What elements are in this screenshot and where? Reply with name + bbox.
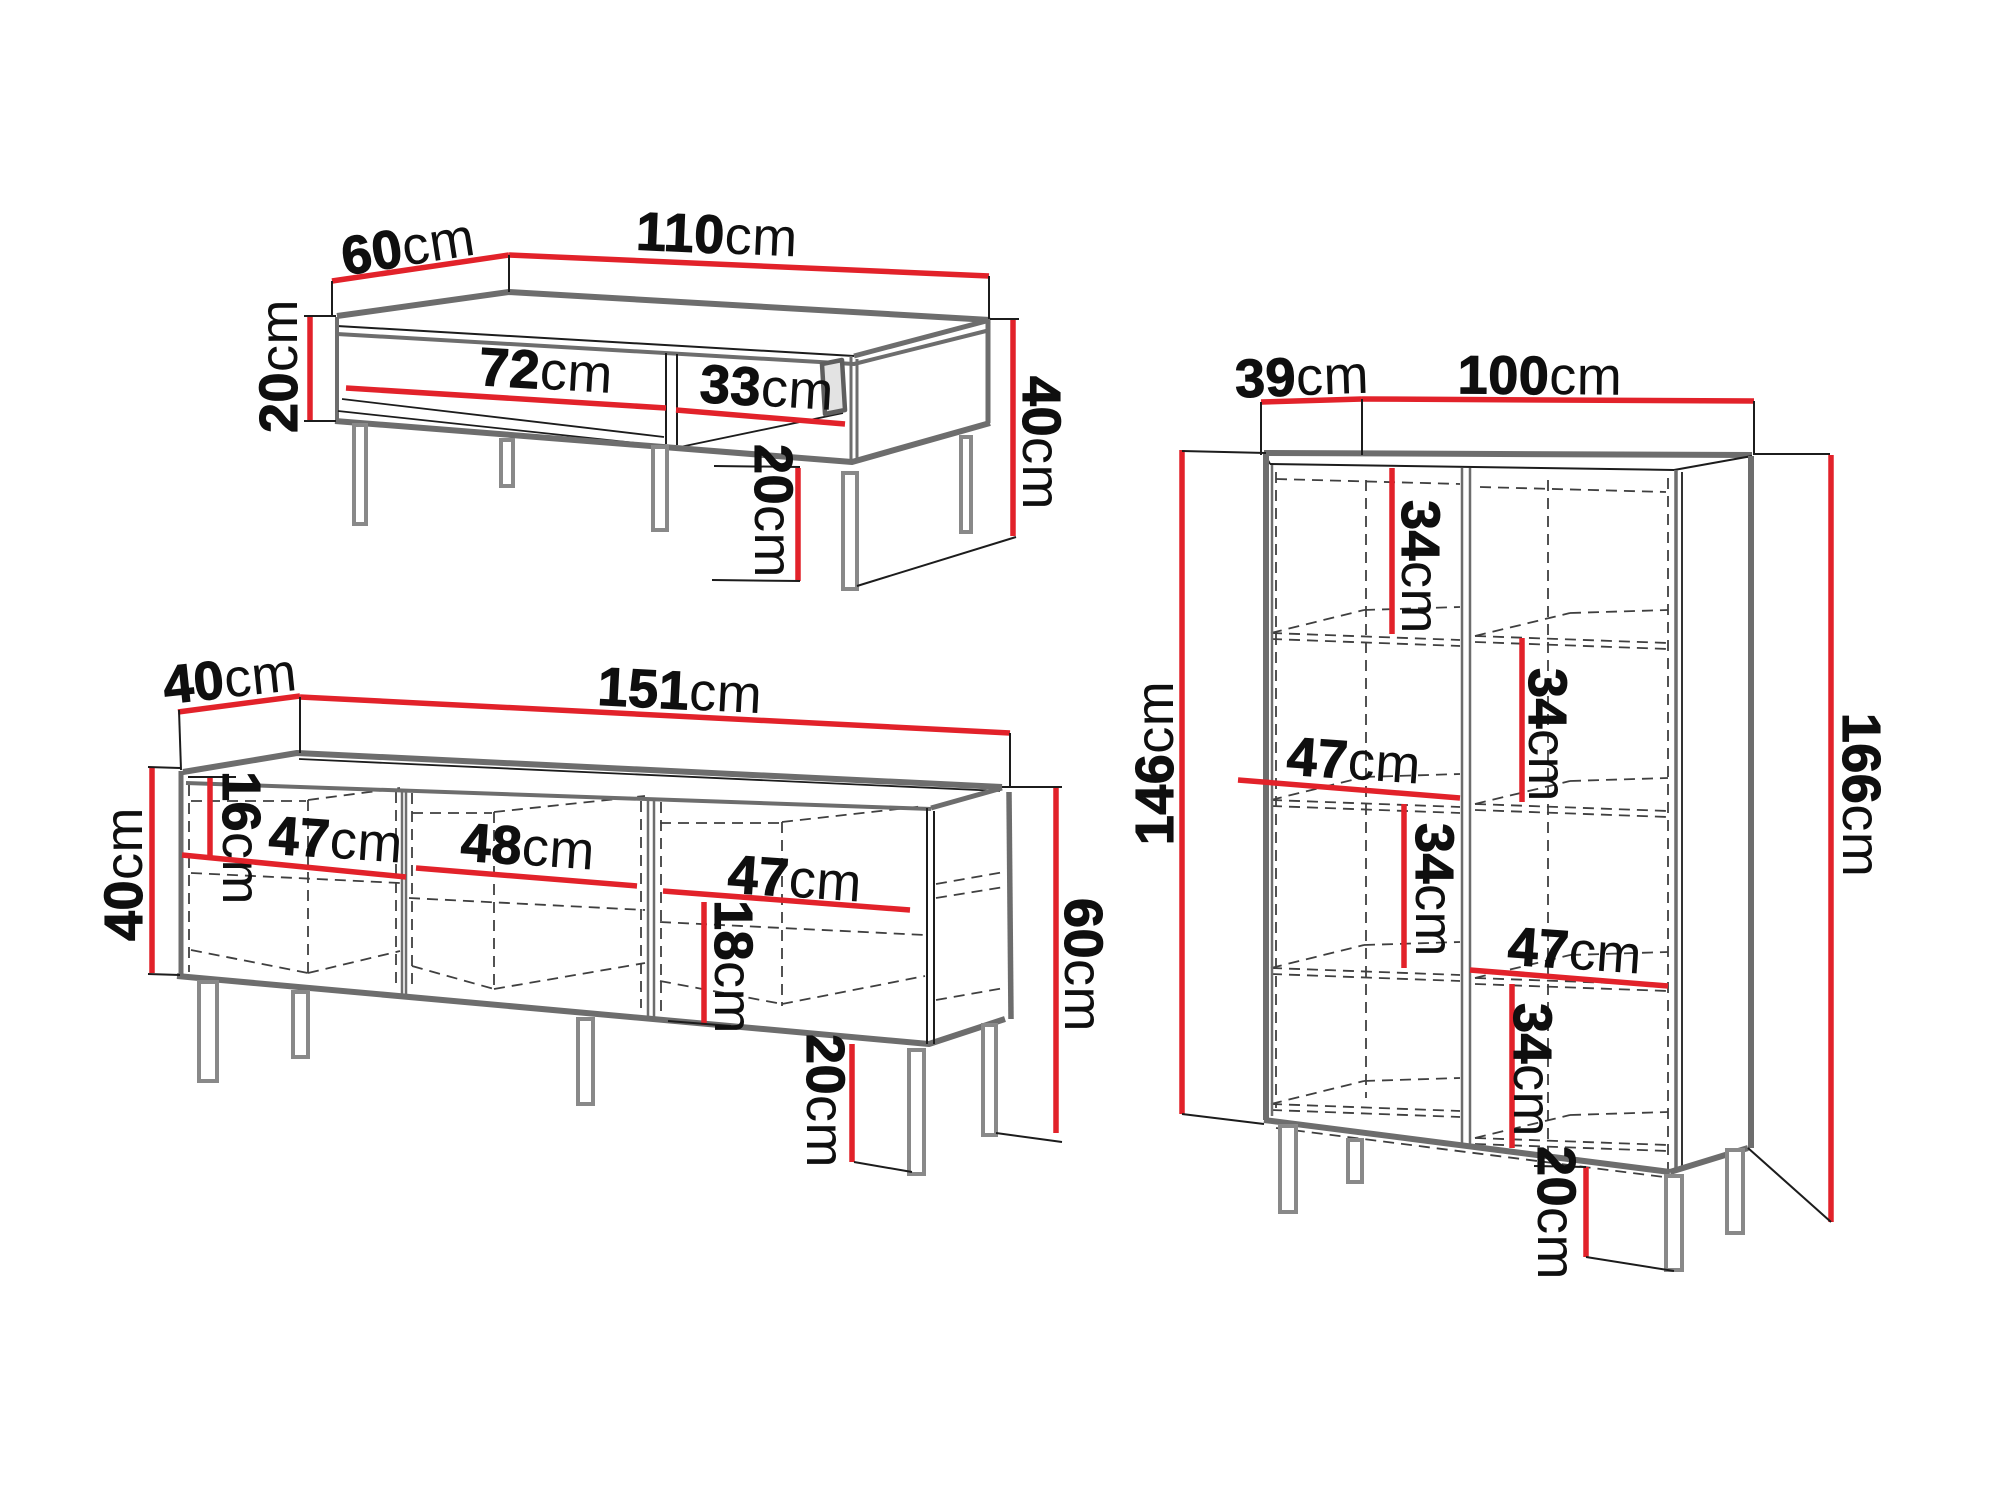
- svg-text:20cm: 20cm: [249, 299, 309, 433]
- svg-text:48cm: 48cm: [459, 812, 597, 881]
- svg-text:20cm: 20cm: [795, 1034, 855, 1168]
- svg-text:18cm: 18cm: [703, 900, 763, 1034]
- svg-text:47cm: 47cm: [1506, 916, 1644, 985]
- svg-text:151cm: 151cm: [596, 657, 764, 726]
- svg-text:34cm: 34cm: [1390, 500, 1450, 634]
- svg-text:60cm: 60cm: [1053, 898, 1113, 1032]
- svg-text:166cm: 166cm: [1831, 713, 1891, 878]
- svg-text:16cm: 16cm: [211, 771, 271, 905]
- svg-text:34cm: 34cm: [1502, 1003, 1562, 1137]
- svg-text:100cm: 100cm: [1457, 345, 1622, 406]
- svg-text:39cm: 39cm: [1234, 345, 1370, 410]
- svg-text:34cm: 34cm: [1404, 823, 1464, 957]
- svg-text:110cm: 110cm: [635, 202, 799, 269]
- svg-text:72cm: 72cm: [477, 337, 614, 405]
- svg-text:146cm: 146cm: [1125, 681, 1185, 846]
- svg-text:33cm: 33cm: [698, 354, 835, 422]
- svg-text:47cm: 47cm: [1285, 726, 1423, 795]
- svg-text:40cm: 40cm: [94, 807, 154, 941]
- svg-text:20cm: 20cm: [1526, 1146, 1586, 1280]
- svg-text:20cm: 20cm: [743, 444, 803, 578]
- svg-text:47cm: 47cm: [267, 805, 405, 874]
- svg-text:34cm: 34cm: [1517, 668, 1577, 802]
- svg-text:40cm: 40cm: [1011, 376, 1071, 510]
